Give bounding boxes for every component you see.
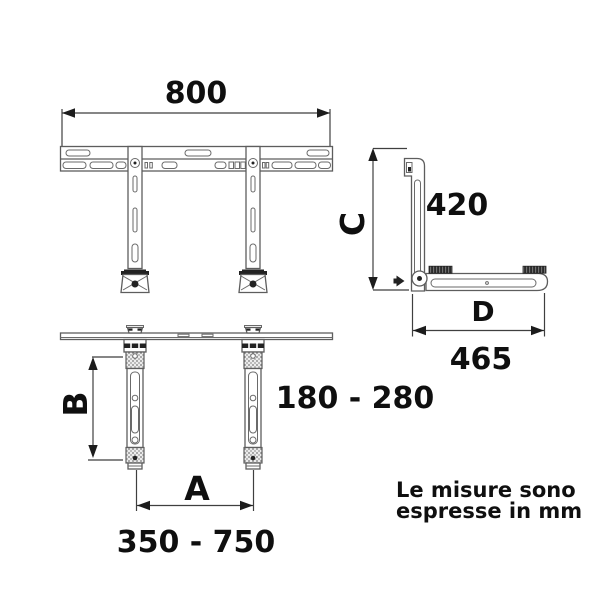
- dim-c: [368, 148, 409, 290]
- diagram-canvas: 800 420 C D 465 180 - 280 B A 350 - 750 …: [0, 0, 600, 600]
- label-b: B: [56, 391, 95, 416]
- front-wall-rail: [61, 147, 333, 172]
- label-180-280: 180 - 280: [276, 381, 435, 416]
- label-c: C: [333, 212, 372, 236]
- label-350-750: 350 - 750: [117, 525, 276, 560]
- side-view: [368, 148, 547, 337]
- bottom-arm-right: [242, 326, 264, 470]
- note-line2: espresse in mm: [396, 499, 582, 523]
- arm-pad-left: [429, 266, 452, 273]
- arm-pad-right: [523, 266, 546, 273]
- label-800: 800: [165, 76, 228, 111]
- lock-pin: [397, 276, 405, 287]
- bottom-arm-left: [124, 326, 146, 470]
- front-view: [61, 108, 333, 292]
- bottom-rail: [61, 333, 333, 340]
- label-d: D: [471, 295, 494, 328]
- label-420: 420: [426, 188, 489, 223]
- label-a: A: [184, 469, 210, 508]
- label-465: 465: [450, 342, 513, 377]
- dim-800: [62, 108, 330, 146]
